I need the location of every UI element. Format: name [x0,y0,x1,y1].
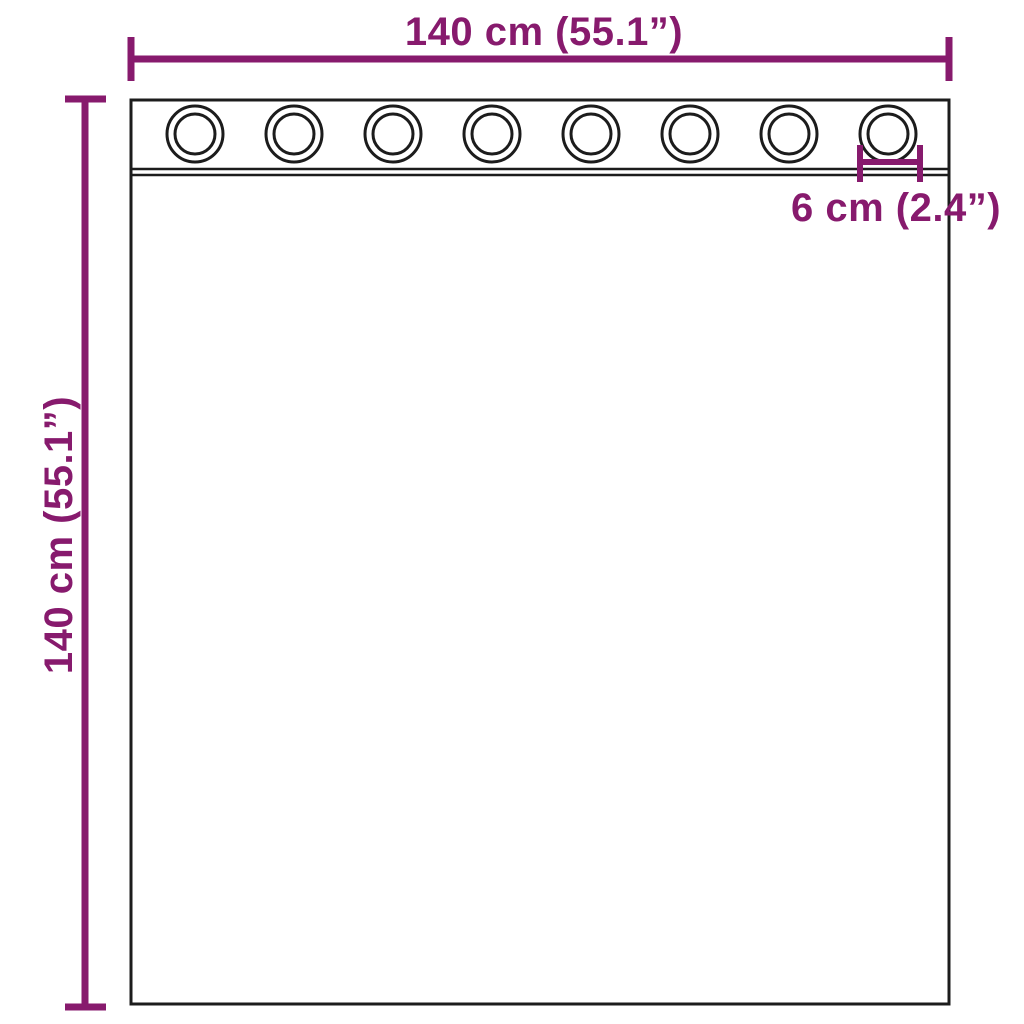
eyelet-inner-ring [175,114,215,154]
eyelet-inner-ring [670,114,710,154]
curtain-dimension-diagram: 140 cm (55.1”) 140 cm (55.1”) 6 cm (2.4”… [0,0,1024,1024]
width-dimension-label: 140 cm (55.1”) [405,10,683,54]
eyelet [563,106,619,162]
eyelet [266,106,322,162]
eyelet-inner-ring [373,114,413,154]
height-dimension: 140 cm (55.1”) [37,99,106,1007]
eyelet-inner-ring [274,114,314,154]
eyelet-inner-ring [472,114,512,154]
diagram-canvas: 140 cm (55.1”) 140 cm (55.1”) 6 cm (2.4”… [0,0,1024,1024]
eyelet [860,106,916,162]
eyelet [662,106,718,162]
eyelet-spacing-label: 6 cm (2.4”) [791,186,1001,230]
eyelet-row [167,106,916,162]
width-dimension: 140 cm (55.1”) [131,10,949,81]
eyelet-inner-ring [868,114,908,154]
eyelet-inner-ring [571,114,611,154]
eyelet [761,106,817,162]
eyelet-inner-ring [769,114,809,154]
curtain-panel [131,100,949,1004]
eyelet-spacing-dimension: 6 cm (2.4”) [791,145,1001,230]
eyelet [365,106,421,162]
eyelet [167,106,223,162]
eyelet [464,106,520,162]
height-dimension-label: 140 cm (55.1”) [37,396,81,674]
